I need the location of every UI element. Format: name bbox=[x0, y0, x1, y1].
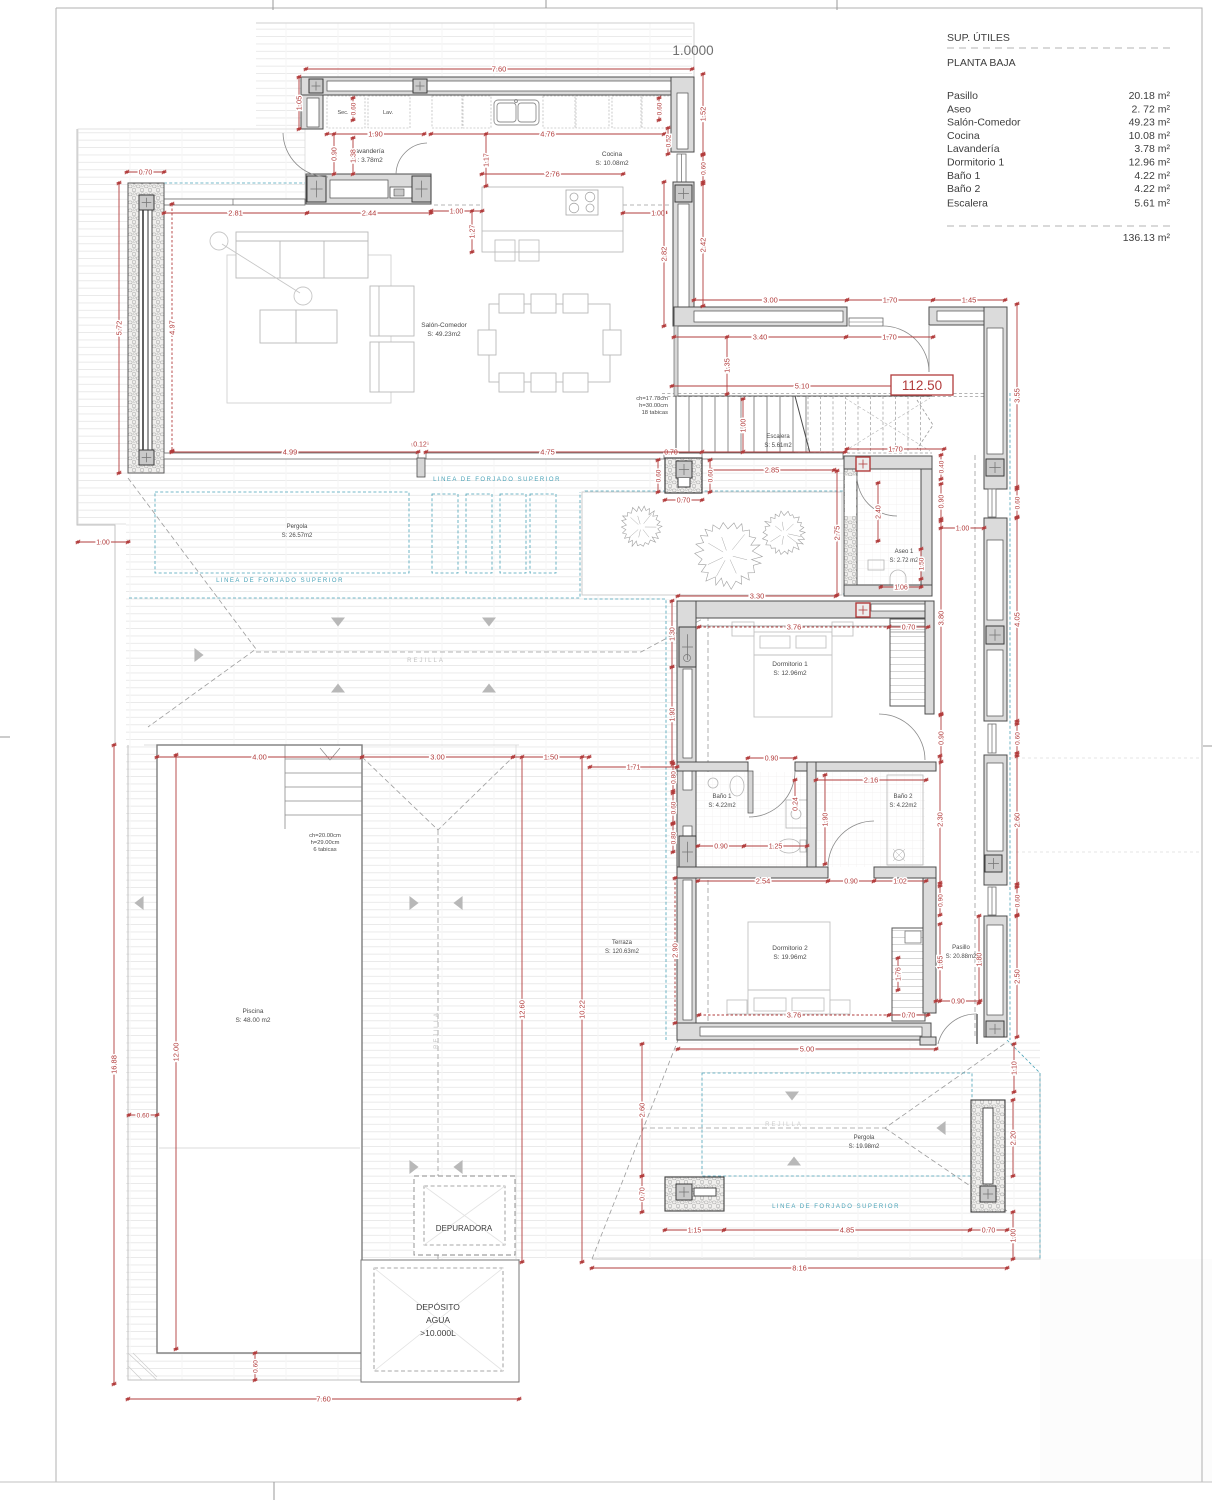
svg-text:0.60: 0.60 bbox=[351, 102, 358, 115]
svg-text:5.10: 5.10 bbox=[795, 382, 810, 391]
svg-text:0.90: 0.90 bbox=[714, 844, 728, 851]
svg-text:1.80: 1.80 bbox=[977, 953, 984, 967]
svg-text:Lavandería: Lavandería bbox=[947, 143, 1000, 155]
svg-text:1.05: 1.05 bbox=[295, 96, 304, 111]
svg-text:Pasillo: Pasillo bbox=[947, 90, 978, 102]
svg-text:0.70: 0.70 bbox=[902, 1013, 916, 1020]
svg-text:0.60: 0.60 bbox=[671, 801, 678, 814]
svg-text:Salón-Comedor: Salón-Comedor bbox=[421, 322, 467, 329]
svg-text:1.52: 1.52 bbox=[699, 107, 708, 122]
svg-text:0.80: 0.80 bbox=[671, 831, 678, 844]
svg-text:0.60: 0.60 bbox=[656, 469, 663, 482]
svg-text:3.76: 3.76 bbox=[787, 623, 802, 632]
svg-text:0.12: 0.12 bbox=[413, 442, 427, 449]
svg-text:2.90: 2.90 bbox=[671, 943, 680, 958]
svg-text:Lav.: Lav. bbox=[383, 110, 393, 116]
svg-text:Baño 2: Baño 2 bbox=[893, 794, 913, 800]
svg-text:1.50: 1.50 bbox=[919, 557, 926, 570]
svg-text:Dormitorio 1: Dormitorio 1 bbox=[947, 157, 1004, 169]
svg-text:Baño 2: Baño 2 bbox=[947, 183, 980, 195]
svg-text:2.85: 2.85 bbox=[765, 466, 780, 475]
svg-text:S: 120.63m2: S: 120.63m2 bbox=[605, 949, 640, 955]
svg-text:1.45: 1.45 bbox=[962, 296, 977, 305]
svg-text:Pergola: Pergola bbox=[287, 524, 308, 530]
svg-text:1.02: 1.02 bbox=[893, 879, 907, 886]
svg-text:0.90: 0.90 bbox=[951, 999, 965, 1006]
svg-text:3.30: 3.30 bbox=[750, 592, 765, 601]
svg-text:Cocina: Cocina bbox=[947, 130, 980, 142]
svg-text:2. 72 m²: 2. 72 m² bbox=[1131, 103, 1170, 115]
svg-text:3.00: 3.00 bbox=[763, 296, 778, 305]
svg-text:1.00: 1.00 bbox=[1011, 1229, 1018, 1243]
svg-text:0.60: 0.60 bbox=[1015, 894, 1022, 907]
svg-text:0.60: 0.60 bbox=[708, 469, 715, 482]
svg-text:12.60: 12.60 bbox=[518, 1000, 527, 1019]
svg-text:2.20: 2.20 bbox=[1009, 1131, 1018, 1146]
svg-text:REJILLA: REJILLA bbox=[765, 1122, 803, 1128]
svg-text:h=30.00cm: h=30.00cm bbox=[639, 403, 668, 409]
svg-text:1.30: 1.30 bbox=[670, 627, 677, 641]
svg-text:3.55: 3.55 bbox=[1013, 388, 1022, 403]
svg-text:8.16: 8.16 bbox=[792, 1264, 807, 1273]
svg-text:10.08 m²: 10.08 m² bbox=[1129, 130, 1171, 142]
svg-text:1.06: 1.06 bbox=[894, 585, 908, 592]
svg-text:S: 19.96m2: S: 19.96m2 bbox=[773, 954, 807, 961]
svg-text:4.22 m²: 4.22 m² bbox=[1134, 170, 1170, 182]
svg-text:S: 4.22m2: S: 4.22m2 bbox=[708, 803, 736, 809]
svg-text:0.70: 0.70 bbox=[902, 625, 916, 632]
svg-text:Piscina: Piscina bbox=[243, 1008, 264, 1015]
svg-text:20.18 m²: 20.18 m² bbox=[1129, 90, 1171, 102]
svg-text:S: 10.08m2: S: 10.08m2 bbox=[595, 160, 629, 167]
svg-text:DEPURADORA: DEPURADORA bbox=[436, 1224, 493, 1233]
svg-text:12.96 m²: 12.96 m² bbox=[1129, 157, 1171, 169]
svg-text:LINEA DE FORJADO SUPERIOR: LINEA DE FORJADO SUPERIOR bbox=[216, 578, 344, 584]
svg-text:12.00: 12.00 bbox=[172, 1043, 181, 1062]
svg-text:Baño 1: Baño 1 bbox=[712, 794, 732, 800]
svg-text:4.99: 4.99 bbox=[283, 448, 298, 457]
svg-text:>10.000L: >10.000L bbox=[420, 1328, 456, 1338]
svg-text:1.50: 1.50 bbox=[544, 753, 559, 762]
svg-text:Escalera: Escalera bbox=[947, 197, 988, 209]
svg-text:4.00: 4.00 bbox=[252, 753, 267, 762]
svg-text:2.40: 2.40 bbox=[876, 505, 883, 519]
svg-text:1.35: 1.35 bbox=[723, 358, 732, 373]
svg-text:2.16: 2.16 bbox=[864, 776, 879, 785]
svg-text:Salón-Comedor: Salón-Comedor bbox=[947, 117, 1021, 129]
svg-text:1.10: 1.10 bbox=[1012, 1061, 1019, 1075]
svg-text:7.60: 7.60 bbox=[316, 1395, 331, 1404]
svg-text:1.00: 1.00 bbox=[741, 419, 748, 433]
svg-text:0.90: 0.90 bbox=[844, 879, 858, 886]
svg-text:2.81: 2.81 bbox=[228, 209, 243, 218]
svg-text:112.50: 112.50 bbox=[902, 378, 942, 393]
svg-text:S: 12.96m2: S: 12.96m2 bbox=[773, 670, 807, 677]
svg-text:3.80: 3.80 bbox=[937, 611, 946, 626]
svg-text:5.61 m²: 5.61 m² bbox=[1134, 197, 1170, 209]
svg-text:h=29.00cm: h=29.00cm bbox=[311, 840, 340, 846]
svg-text:1.00: 1.00 bbox=[450, 209, 464, 216]
svg-text:Dormitorio 2: Dormitorio 2 bbox=[772, 945, 808, 952]
svg-text:16.88: 16.88 bbox=[110, 1055, 119, 1074]
svg-text:1.90: 1.90 bbox=[670, 708, 677, 722]
svg-text:4.97: 4.97 bbox=[168, 320, 177, 335]
svg-text:1.71: 1.71 bbox=[627, 765, 641, 772]
svg-text:LINEA DE FORJADO SUPERIOR: LINEA DE FORJADO SUPERIOR bbox=[772, 1204, 900, 1210]
svg-text:2.76: 2.76 bbox=[545, 170, 560, 179]
svg-text:1.65: 1.65 bbox=[938, 956, 945, 970]
svg-text:2.30: 2.30 bbox=[936, 812, 945, 827]
svg-text:Escalera: Escalera bbox=[766, 434, 790, 440]
svg-text:1.17: 1.17 bbox=[484, 153, 491, 167]
svg-text:Sec.: Sec. bbox=[337, 110, 348, 116]
svg-text:0.52: 0.52 bbox=[666, 134, 673, 147]
svg-text:2.54: 2.54 bbox=[756, 877, 771, 886]
svg-text:0.60: 0.60 bbox=[657, 102, 664, 115]
svg-text:2.44: 2.44 bbox=[362, 209, 377, 218]
svg-text:4.76: 4.76 bbox=[540, 130, 555, 139]
svg-text:Aseo 1: Aseo 1 bbox=[895, 549, 914, 555]
svg-text:S: 4.22m2: S: 4.22m2 bbox=[889, 803, 917, 809]
svg-text:0.70: 0.70 bbox=[677, 498, 691, 505]
svg-text:S: 49.23m2: S: 49.23m2 bbox=[427, 331, 461, 338]
svg-text:ch=20.00cm: ch=20.00cm bbox=[309, 833, 341, 839]
svg-text:7.60: 7.60 bbox=[492, 65, 507, 74]
svg-text:2.82: 2.82 bbox=[660, 247, 669, 262]
svg-text:ch=17.78cm: ch=17.78cm bbox=[636, 396, 668, 402]
svg-text:1.25: 1.25 bbox=[769, 844, 783, 851]
svg-text:0.60: 0.60 bbox=[1015, 496, 1022, 509]
svg-text:2.75: 2.75 bbox=[833, 526, 842, 541]
svg-text:0.90: 0.90 bbox=[765, 756, 779, 763]
svg-text:S: 19.98m2: S: 19.98m2 bbox=[849, 1144, 880, 1150]
svg-text:Baño 1: Baño 1 bbox=[947, 170, 980, 182]
svg-text:REJILLA: REJILLA bbox=[407, 658, 445, 664]
svg-text:Pasillo: Pasillo bbox=[952, 945, 970, 951]
svg-text:0.60: 0.60 bbox=[701, 162, 708, 175]
svg-text:5.72: 5.72 bbox=[115, 321, 124, 336]
svg-text:3.40: 3.40 bbox=[753, 333, 768, 342]
svg-text:Terraza: Terraza bbox=[612, 940, 633, 946]
svg-text:AGUA: AGUA bbox=[426, 1315, 450, 1325]
svg-text:0.70: 0.70 bbox=[640, 1187, 647, 1201]
svg-text:3.00: 3.00 bbox=[430, 753, 445, 762]
svg-text:1.00: 1.00 bbox=[651, 211, 665, 218]
svg-text:S: 3.78m2: S: 3.78m2 bbox=[353, 157, 383, 164]
svg-text:0.90: 0.90 bbox=[332, 147, 339, 161]
svg-text:136.13 m²: 136.13 m² bbox=[1123, 232, 1171, 244]
svg-text:2.60: 2.60 bbox=[1013, 813, 1022, 828]
svg-text:PLANTA BAJA: PLANTA BAJA bbox=[947, 57, 1016, 69]
svg-text:0.70: 0.70 bbox=[982, 1228, 996, 1235]
svg-text:1.90: 1.90 bbox=[368, 130, 383, 139]
svg-text:S: 48.00 m2: S: 48.00 m2 bbox=[235, 1017, 270, 1024]
svg-text:49.23 m²: 49.23 m² bbox=[1129, 117, 1171, 129]
svg-text:4.75: 4.75 bbox=[540, 448, 555, 457]
svg-text:S: 20.88m2: S: 20.88m2 bbox=[946, 954, 977, 960]
svg-text:1.38: 1.38 bbox=[351, 149, 358, 163]
svg-text:0.70: 0.70 bbox=[139, 170, 153, 177]
svg-text:6 tabicas: 6 tabicas bbox=[313, 847, 336, 853]
svg-text:1.27: 1.27 bbox=[470, 225, 477, 239]
svg-text:0.90: 0.90 bbox=[939, 495, 946, 509]
svg-text:3.76: 3.76 bbox=[787, 1011, 802, 1020]
svg-text:S: 5.61m2: S: 5.61m2 bbox=[764, 443, 792, 449]
svg-text:DEPÓSITO: DEPÓSITO bbox=[416, 1302, 460, 1312]
svg-text:S: 26.57m2: S: 26.57m2 bbox=[282, 533, 313, 539]
svg-text:18 tabicas: 18 tabicas bbox=[642, 410, 669, 416]
svg-text:REJILLA: REJILLA bbox=[434, 1011, 440, 1049]
svg-text:0.24: 0.24 bbox=[793, 797, 800, 811]
svg-text:2.42: 2.42 bbox=[699, 238, 708, 253]
svg-text:SUP. ÚTILES: SUP. ÚTILES bbox=[947, 31, 1010, 44]
svg-text:Aseo: Aseo bbox=[947, 103, 971, 115]
svg-text:0.90: 0.90 bbox=[938, 894, 945, 907]
svg-text:1.0000: 1.0000 bbox=[672, 43, 713, 58]
svg-text:3.78 m²: 3.78 m² bbox=[1134, 143, 1170, 155]
svg-text:1.00: 1.00 bbox=[96, 540, 110, 547]
svg-text:0.60: 0.60 bbox=[137, 1113, 150, 1120]
svg-text:10.22: 10.22 bbox=[578, 1000, 587, 1019]
svg-text:1.70: 1.70 bbox=[883, 296, 898, 305]
svg-text:0.60: 0.60 bbox=[1015, 732, 1022, 745]
svg-text:1.70: 1.70 bbox=[882, 333, 897, 342]
svg-text:Cocina: Cocina bbox=[602, 151, 623, 158]
svg-text:LINEA DE FORJADO SUPERIOR: LINEA DE FORJADO SUPERIOR bbox=[433, 477, 561, 483]
svg-text:5.00: 5.00 bbox=[800, 1045, 815, 1054]
svg-text:0.80: 0.80 bbox=[671, 771, 678, 784]
svg-text:1.15: 1.15 bbox=[688, 1228, 702, 1235]
svg-text:1.90: 1.90 bbox=[823, 813, 830, 827]
svg-text:1.00: 1.00 bbox=[956, 526, 970, 533]
svg-text:Pergola: Pergola bbox=[854, 1135, 875, 1141]
svg-text:1.70: 1.70 bbox=[888, 445, 903, 454]
svg-text:2.50: 2.50 bbox=[1013, 969, 1022, 984]
svg-text:Dormitorio 1: Dormitorio 1 bbox=[772, 661, 808, 668]
svg-text:4.85: 4.85 bbox=[840, 1226, 855, 1235]
svg-text:4.22 m²: 4.22 m² bbox=[1134, 183, 1170, 195]
svg-text:1.76: 1.76 bbox=[896, 967, 903, 981]
svg-text:2.60: 2.60 bbox=[638, 1103, 647, 1118]
svg-text:4.05: 4.05 bbox=[1013, 612, 1022, 627]
svg-text:0.70: 0.70 bbox=[664, 450, 678, 457]
svg-text:0.40: 0.40 bbox=[939, 460, 946, 473]
svg-text:S: 2.72 m2: S: 2.72 m2 bbox=[889, 558, 919, 564]
svg-text:0.60: 0.60 bbox=[253, 1360, 260, 1373]
svg-text:0.90: 0.90 bbox=[939, 731, 946, 745]
